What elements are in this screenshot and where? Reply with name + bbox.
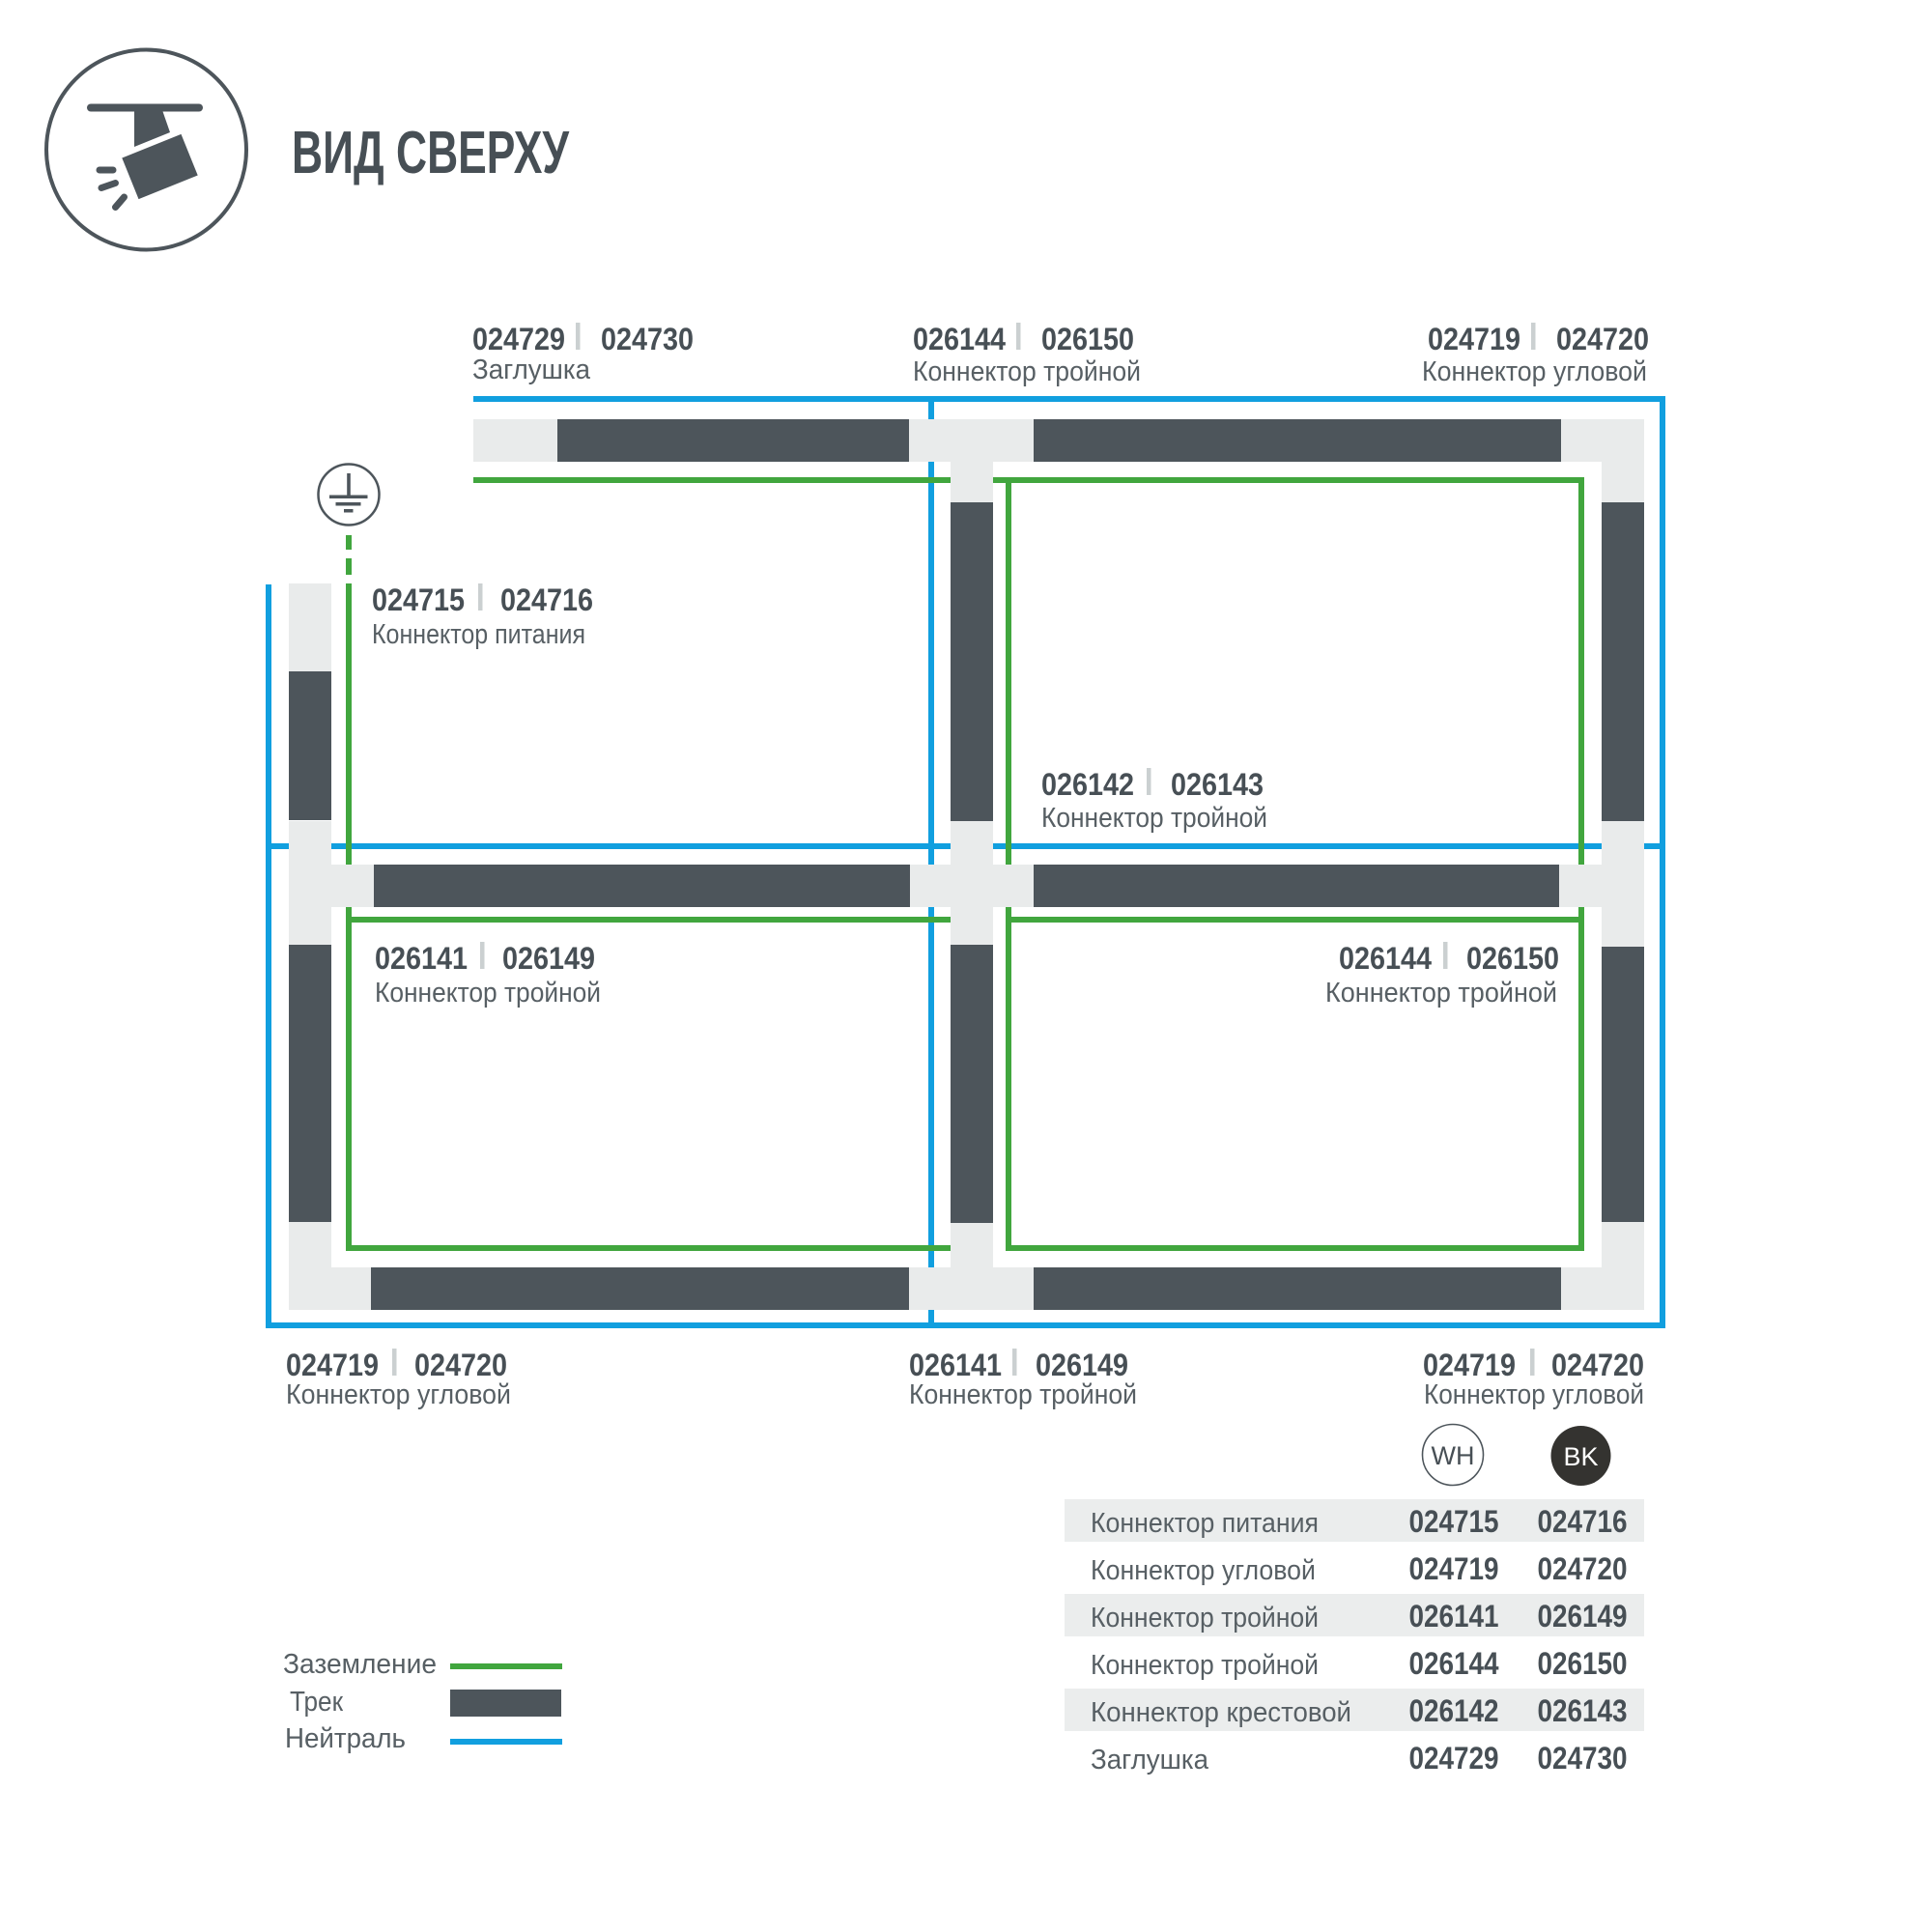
svg-text:Коннектор тройной: Коннектор тройной <box>1325 978 1557 1009</box>
svg-text:ВИД СВЕРХУ: ВИД СВЕРХУ <box>292 120 570 186</box>
svg-text:026144: 026144 <box>1339 941 1432 976</box>
svg-text:024730: 024730 <box>1538 1741 1628 1776</box>
svg-text:Коннектор тройной: Коннектор тройной <box>1091 1650 1319 1681</box>
svg-text:Заглушка: Заглушка <box>1091 1745 1209 1776</box>
svg-text:Коннектор угловой: Коннектор угловой <box>1422 356 1647 387</box>
svg-text:Коннектор угловой: Коннектор угловой <box>1091 1555 1316 1586</box>
svg-text:024719: 024719 <box>1428 322 1520 356</box>
svg-text:026149: 026149 <box>502 941 595 976</box>
svg-text:026149: 026149 <box>1538 1599 1628 1634</box>
svg-text:026149: 026149 <box>1036 1348 1128 1382</box>
svg-text:Заглушка: Заглушка <box>472 355 591 385</box>
svg-text:Коннектор угловой: Коннектор угловой <box>286 1379 511 1410</box>
svg-text:026144: 026144 <box>1409 1646 1499 1681</box>
svg-text:Коннектор тройной: Коннектор тройной <box>1041 803 1267 834</box>
svg-text:026150: 026150 <box>1466 941 1559 976</box>
svg-text:Коннектор тройной: Коннектор тройной <box>909 1379 1137 1410</box>
svg-text:Коннектор тройной: Коннектор тройной <box>913 356 1141 387</box>
svg-text:026143: 026143 <box>1171 767 1264 802</box>
svg-text:024720: 024720 <box>1538 1551 1628 1586</box>
svg-text:026143: 026143 <box>1538 1693 1628 1728</box>
svg-text:Нейтраль: Нейтраль <box>285 1723 406 1754</box>
svg-text:026144: 026144 <box>913 322 1006 356</box>
svg-text:Заземление: Заземление <box>283 1649 437 1680</box>
svg-text:024719: 024719 <box>1423 1348 1516 1382</box>
svg-text:024720: 024720 <box>414 1348 507 1382</box>
svg-text:026142: 026142 <box>1041 767 1134 802</box>
svg-text:024720: 024720 <box>1556 322 1649 356</box>
svg-text:Коннектор питания: Коннектор питания <box>372 619 585 650</box>
svg-text:Коннектор крестовой: Коннектор крестовой <box>1091 1697 1351 1728</box>
svg-text:024719: 024719 <box>1409 1551 1499 1586</box>
svg-text:WH: WH <box>1432 1441 1475 1470</box>
svg-text:Коннектор питания: Коннектор питания <box>1091 1508 1319 1539</box>
svg-text:Коннектор угловой: Коннектор угловой <box>1424 1379 1644 1410</box>
svg-text:026141: 026141 <box>909 1348 1002 1382</box>
svg-text:024719: 024719 <box>286 1348 379 1382</box>
svg-text:026142: 026142 <box>1409 1693 1499 1728</box>
svg-text:026141: 026141 <box>1409 1599 1499 1634</box>
svg-text:Коннектор тройной: Коннектор тройной <box>1091 1603 1319 1634</box>
svg-text:026141: 026141 <box>375 941 468 976</box>
svg-text:024720: 024720 <box>1551 1348 1644 1382</box>
svg-text:026150: 026150 <box>1538 1646 1628 1681</box>
svg-text:024729: 024729 <box>1409 1741 1499 1776</box>
svg-text:024730: 024730 <box>601 322 694 356</box>
svg-text:024715: 024715 <box>1409 1504 1499 1539</box>
svg-text:024716: 024716 <box>500 582 593 617</box>
svg-text:024716: 024716 <box>1538 1504 1628 1539</box>
svg-text:024715: 024715 <box>372 582 465 617</box>
svg-text:BK: BK <box>1563 1442 1598 1471</box>
svg-text:024729: 024729 <box>472 322 565 356</box>
svg-text:Коннектор тройной: Коннектор тройной <box>375 978 601 1009</box>
svg-text:Трек: Трек <box>290 1687 343 1718</box>
svg-text:026150: 026150 <box>1041 322 1134 356</box>
